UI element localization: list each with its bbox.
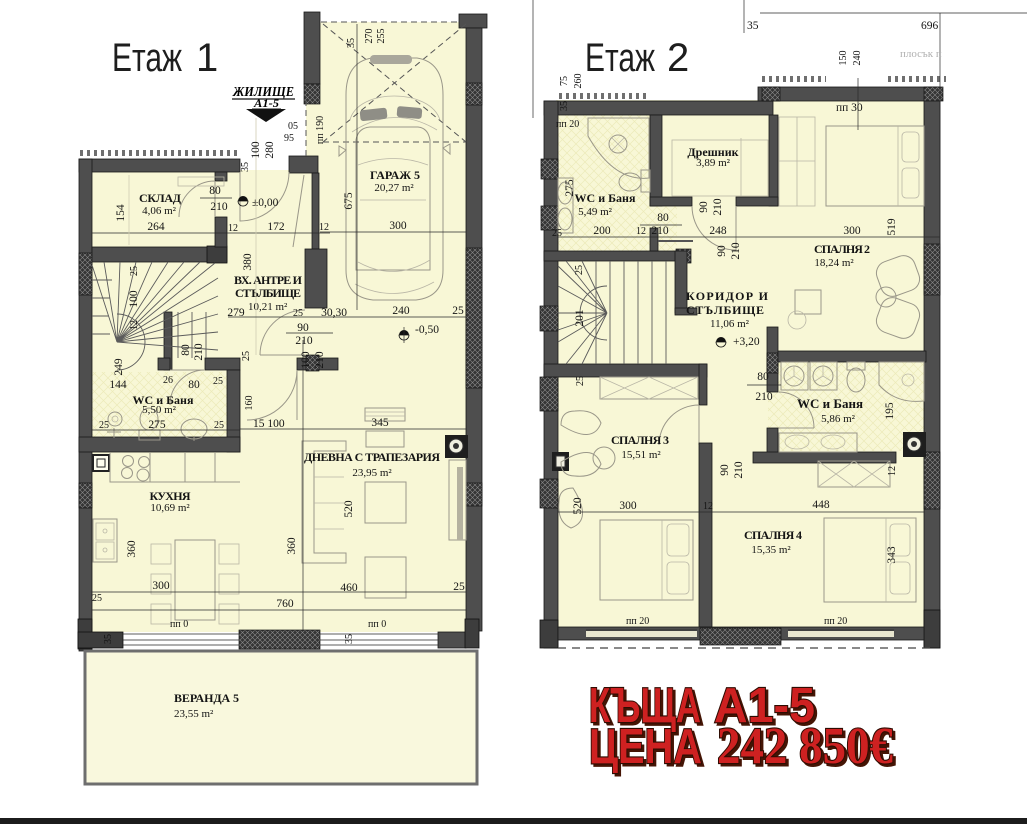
svg-text:СПАЛНЯ 2: СПАЛНЯ 2 — [814, 242, 870, 256]
svg-text:210: 210 — [730, 242, 742, 260]
svg-text:30,30: 30,30 — [321, 307, 347, 319]
svg-text:WC и Баня: WC и Баня — [575, 191, 636, 205]
svg-text:пп 20: пп 20 — [824, 616, 847, 627]
svg-text:144: 144 — [109, 379, 127, 391]
svg-text:ВЕРАНДА 5: ВЕРАНДА 5 — [174, 691, 239, 705]
svg-text:5,50 m²: 5,50 m² — [142, 404, 177, 416]
svg-text:80: 80 — [757, 371, 769, 383]
svg-text:1: 1 — [196, 36, 218, 80]
svg-text:240: 240 — [852, 51, 863, 66]
svg-text:ГАРАЖ 5: ГАРАЖ 5 — [370, 168, 420, 182]
svg-text:300: 300 — [152, 580, 170, 592]
svg-text:255: 255 — [376, 29, 387, 44]
svg-text:90: 90 — [716, 245, 728, 257]
svg-text:300: 300 — [619, 500, 637, 512]
svg-text:12: 12 — [703, 501, 713, 512]
svg-text:80: 80 — [180, 344, 192, 356]
svg-text:25: 25 — [241, 351, 252, 361]
svg-text:100: 100 — [300, 351, 312, 369]
svg-text:154: 154 — [115, 204, 127, 222]
svg-text:ВХ. АНТРЕ И: ВХ. АНТРЕ И — [234, 273, 303, 287]
svg-text:210: 210 — [755, 391, 773, 403]
svg-text:675: 675 — [343, 192, 355, 210]
svg-text:плосък п: плосък п — [900, 48, 942, 60]
svg-text:360: 360 — [286, 537, 298, 555]
svg-text:5,49 m²: 5,49 m² — [578, 206, 613, 218]
svg-text:5,86 m²: 5,86 m² — [821, 413, 856, 425]
svg-text:СТЪЛБИЩЕ: СТЪЛБИЩЕ — [686, 303, 764, 317]
svg-text:23,95 m²: 23,95 m² — [352, 467, 392, 479]
svg-text:пп 190: пп 190 — [315, 116, 326, 144]
svg-text:12: 12 — [129, 320, 140, 330]
svg-text:300: 300 — [843, 225, 861, 237]
svg-text:343: 343 — [886, 546, 898, 564]
svg-text:760: 760 — [276, 598, 294, 610]
svg-text:195: 195 — [884, 402, 896, 420]
svg-text:25: 25 — [575, 376, 586, 386]
svg-text:20,27 m²: 20,27 m² — [374, 182, 414, 194]
svg-text:80: 80 — [209, 185, 221, 197]
svg-text:12: 12 — [887, 466, 898, 476]
svg-text:+3,20: +3,20 — [733, 336, 760, 348]
svg-text:696: 696 — [921, 20, 939, 32]
svg-text:201: 201 — [574, 309, 586, 327]
svg-text:СПАЛНЯ 3: СПАЛНЯ 3 — [611, 433, 669, 447]
svg-text:380: 380 — [242, 253, 254, 271]
svg-text:75: 75 — [559, 76, 570, 86]
svg-text:150: 150 — [838, 51, 849, 66]
svg-text:25: 25 — [552, 228, 562, 239]
svg-text:240: 240 — [392, 305, 410, 317]
svg-text:10,69 m²: 10,69 m² — [150, 502, 190, 514]
svg-text:275: 275 — [148, 419, 166, 431]
svg-text:3,89 m²: 3,89 m² — [696, 157, 731, 169]
svg-text:279: 279 — [227, 307, 245, 319]
svg-text:35: 35 — [344, 634, 355, 644]
svg-text:80: 80 — [188, 379, 200, 391]
svg-text:35: 35 — [346, 38, 357, 48]
svg-text:2: 2 — [667, 36, 689, 80]
svg-text:35: 35 — [747, 20, 759, 32]
svg-text:210: 210 — [210, 201, 228, 213]
svg-text:10,21 m²: 10,21 m² — [248, 301, 288, 313]
svg-text:249: 249 — [113, 358, 125, 376]
svg-text:519: 519 — [886, 218, 898, 236]
svg-text:100: 100 — [128, 290, 140, 308]
svg-text:4,06 m²: 4,06 m² — [142, 205, 177, 217]
svg-text:242 850€: 242 850€ — [717, 718, 893, 775]
svg-text:СТЪЛБИЩЕ: СТЪЛБИЩЕ — [235, 286, 301, 300]
svg-text:270: 270 — [364, 29, 375, 44]
svg-text:15,51 m²: 15,51 m² — [621, 449, 661, 461]
svg-text:12: 12 — [228, 223, 238, 234]
svg-text:пп 20: пп 20 — [556, 119, 579, 130]
svg-text:25: 25 — [213, 376, 223, 387]
svg-text:25: 25 — [92, 593, 102, 604]
svg-text:КОРИДОР И: КОРИДОР И — [686, 289, 769, 303]
svg-text:СПАЛНЯ 4: СПАЛНЯ 4 — [744, 528, 802, 542]
svg-text:12: 12 — [319, 222, 329, 233]
svg-text:90: 90 — [698, 201, 710, 213]
svg-text:Етаж: Етаж — [112, 36, 182, 80]
svg-text:160: 160 — [244, 396, 255, 411]
svg-text:пп 0: пп 0 — [368, 619, 386, 630]
svg-text:Етаж: Етаж — [585, 36, 655, 80]
svg-text:460: 460 — [340, 582, 358, 594]
svg-text:пп 0: пп 0 — [170, 619, 188, 630]
svg-text:210: 210 — [733, 461, 745, 479]
svg-text:300: 300 — [389, 220, 407, 232]
svg-text:210: 210 — [295, 335, 313, 347]
svg-text:35: 35 — [559, 101, 570, 111]
svg-text:25: 25 — [452, 305, 464, 317]
svg-text:210: 210 — [193, 343, 205, 361]
svg-text:264: 264 — [147, 221, 165, 233]
svg-text:15 100: 15 100 — [253, 418, 285, 430]
svg-text:35: 35 — [240, 162, 251, 172]
svg-text:ЦЕНА: ЦЕНА — [589, 720, 702, 774]
svg-text:25: 25 — [453, 581, 465, 593]
svg-text:248: 248 — [709, 225, 727, 237]
svg-text:280: 280 — [264, 141, 276, 159]
svg-text:275: 275 — [564, 179, 576, 197]
svg-text:25: 25 — [129, 266, 140, 276]
svg-text:345: 345 — [371, 417, 389, 429]
svg-text:210: 210 — [651, 225, 669, 237]
svg-text:12: 12 — [636, 226, 646, 237]
svg-text:пп 20: пп 20 — [626, 616, 649, 627]
svg-text:90: 90 — [719, 464, 731, 476]
svg-text:448: 448 — [812, 499, 830, 511]
svg-text:35: 35 — [103, 634, 114, 644]
svg-text:15,35 m²: 15,35 m² — [751, 544, 791, 556]
svg-text:200: 200 — [593, 225, 611, 237]
svg-text:25: 25 — [293, 308, 303, 319]
svg-text:WC и Баня: WC и Баня — [797, 396, 863, 411]
svg-text:172: 172 — [267, 221, 285, 233]
svg-text:ДНЕВНА С ТРАПЕЗАРИЯ: ДНЕВНА С ТРАПЕЗАРИЯ — [304, 450, 440, 464]
svg-text:А1-5: А1-5 — [253, 98, 279, 110]
svg-text:05: 05 — [288, 121, 298, 132]
svg-text:90: 90 — [297, 322, 309, 334]
svg-text:23,55 m²: 23,55 m² — [174, 708, 214, 720]
svg-text:пп 30: пп 30 — [836, 102, 863, 114]
svg-text:-0,50: -0,50 — [415, 324, 439, 336]
svg-text:СКЛАД: СКЛАД — [139, 191, 182, 205]
svg-text:520: 520 — [572, 497, 584, 515]
svg-text:95: 95 — [284, 133, 294, 144]
svg-text:360: 360 — [126, 540, 138, 558]
svg-text:80: 80 — [657, 212, 669, 224]
svg-text:25: 25 — [99, 420, 109, 431]
svg-text:25: 25 — [574, 265, 585, 275]
svg-text:210: 210 — [314, 351, 326, 369]
svg-text:260: 260 — [573, 74, 584, 89]
svg-text:КУХНЯ: КУХНЯ — [150, 489, 191, 503]
svg-text:11,06 m²: 11,06 m² — [710, 318, 750, 330]
svg-text:26: 26 — [163, 375, 173, 386]
svg-text:210: 210 — [712, 198, 724, 216]
svg-text:18,24 m²: 18,24 m² — [814, 257, 854, 269]
svg-text:25: 25 — [214, 420, 224, 431]
svg-text:520: 520 — [343, 500, 355, 518]
svg-text:100: 100 — [250, 141, 262, 159]
